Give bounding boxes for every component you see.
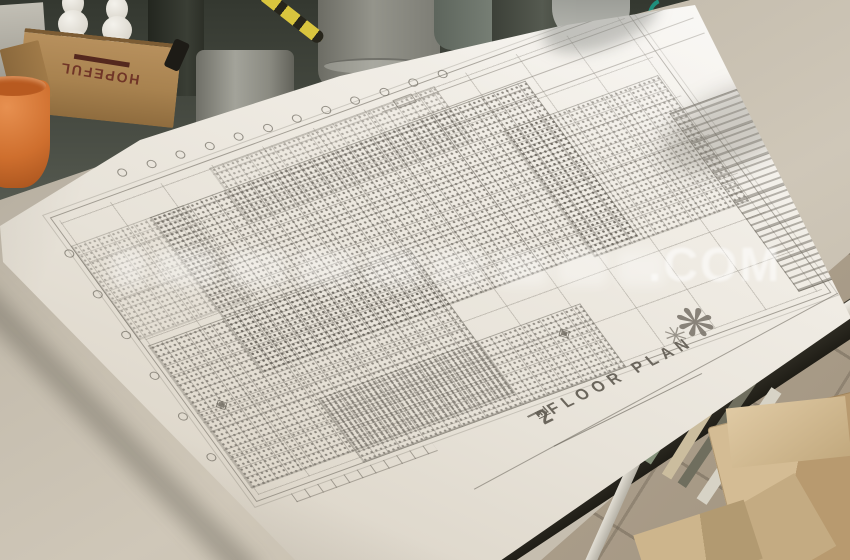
- watermark-letter-blob: [297, 250, 356, 286]
- watermark-letter-blob: [365, 250, 422, 286]
- watermark-letter-blob: [495, 250, 548, 286]
- watermark-suffix: .COM: [648, 238, 781, 293]
- watermark-letter-blob: [431, 250, 486, 286]
- watermark-letter-blob: [227, 250, 288, 286]
- orange-bucket: [0, 80, 50, 188]
- photo-blueprint-on-table: HOPEFUL: [0, 0, 850, 560]
- watermark: .COM: [100, 240, 810, 302]
- watermark-letter-blob: [557, 250, 608, 286]
- watermark-letter-blob: [155, 250, 218, 286]
- watermark-letter-blob: [112, 250, 146, 286]
